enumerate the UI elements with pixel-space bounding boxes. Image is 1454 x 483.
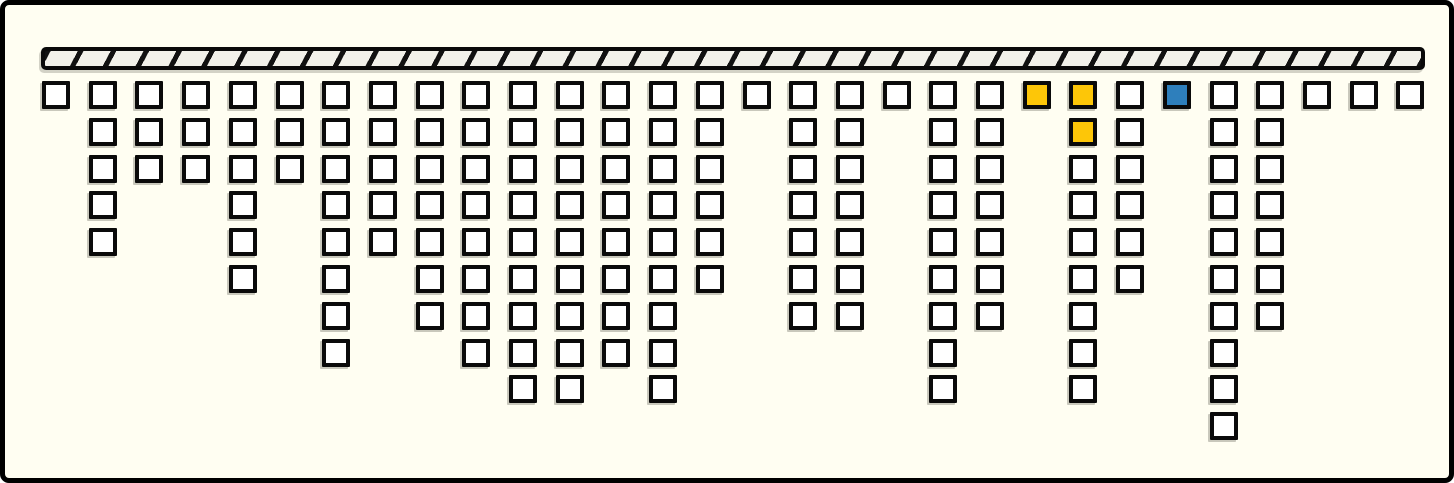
cell — [1116, 81, 1144, 109]
cell — [1069, 375, 1097, 403]
cell — [929, 118, 957, 146]
cell — [602, 339, 630, 367]
cell — [369, 81, 397, 109]
cell — [89, 118, 117, 146]
cell-highlight-yellow — [1069, 81, 1097, 109]
cell — [789, 191, 817, 219]
cell — [89, 191, 117, 219]
cell — [1069, 302, 1097, 330]
cell — [976, 191, 1004, 219]
cell — [836, 265, 864, 293]
cell — [649, 81, 677, 109]
cell — [1210, 265, 1238, 293]
cell — [462, 265, 490, 293]
cell — [462, 302, 490, 330]
cell — [416, 302, 444, 330]
cell — [696, 118, 724, 146]
cell — [276, 155, 304, 183]
cell — [1116, 118, 1144, 146]
cell — [696, 265, 724, 293]
cell — [1210, 155, 1238, 183]
cell — [696, 155, 724, 183]
diagram-frame — [0, 0, 1454, 483]
cell — [929, 228, 957, 256]
cell — [556, 81, 584, 109]
cell — [836, 302, 864, 330]
cell — [929, 339, 957, 367]
cell — [1069, 228, 1097, 256]
cell — [1256, 302, 1284, 330]
cell — [509, 228, 537, 256]
cell — [696, 191, 724, 219]
cell — [509, 375, 537, 403]
cell — [602, 155, 630, 183]
cell — [649, 118, 677, 146]
cell — [649, 155, 677, 183]
cell — [1116, 155, 1144, 183]
cell — [1256, 155, 1284, 183]
cell — [976, 155, 1004, 183]
cell — [556, 191, 584, 219]
cell — [649, 339, 677, 367]
cell — [556, 339, 584, 367]
cell — [509, 155, 537, 183]
cell — [322, 302, 350, 330]
cell — [369, 228, 397, 256]
cell — [836, 118, 864, 146]
cell — [229, 265, 257, 293]
cell — [182, 118, 210, 146]
cell — [743, 81, 771, 109]
cell — [789, 118, 817, 146]
cell — [976, 118, 1004, 146]
cell — [836, 81, 864, 109]
cell — [836, 155, 864, 183]
cell — [1069, 155, 1097, 183]
cell — [1210, 191, 1238, 219]
cell — [369, 155, 397, 183]
cell — [89, 81, 117, 109]
cell — [696, 228, 724, 256]
cell — [509, 81, 537, 109]
cell — [1256, 81, 1284, 109]
cell — [976, 302, 1004, 330]
cell — [1256, 118, 1284, 146]
cell — [696, 81, 724, 109]
cell — [976, 228, 1004, 256]
cell — [229, 155, 257, 183]
cell — [322, 265, 350, 293]
cell — [976, 81, 1004, 109]
cell — [509, 191, 537, 219]
cell — [1256, 191, 1284, 219]
cell — [836, 191, 864, 219]
cell — [1116, 191, 1144, 219]
cell — [462, 118, 490, 146]
cell — [602, 81, 630, 109]
cell — [322, 191, 350, 219]
cell — [649, 265, 677, 293]
cell — [322, 118, 350, 146]
cell — [276, 118, 304, 146]
cell — [556, 228, 584, 256]
cell — [509, 265, 537, 293]
cell — [1069, 265, 1097, 293]
cell — [322, 81, 350, 109]
cell — [556, 265, 584, 293]
cell — [929, 155, 957, 183]
cell — [42, 81, 70, 109]
cell — [182, 81, 210, 109]
cell — [556, 155, 584, 183]
cell — [322, 339, 350, 367]
cell — [1210, 81, 1238, 109]
cell — [509, 118, 537, 146]
cell — [789, 228, 817, 256]
cell — [883, 81, 911, 109]
cell — [1116, 228, 1144, 256]
cell — [89, 228, 117, 256]
cell — [929, 302, 957, 330]
cell — [602, 228, 630, 256]
cell — [462, 228, 490, 256]
cell — [1210, 375, 1238, 403]
cell — [929, 375, 957, 403]
cell — [649, 302, 677, 330]
cell — [976, 265, 1004, 293]
cell — [276, 81, 304, 109]
cell — [1069, 191, 1097, 219]
cell — [789, 81, 817, 109]
cell — [649, 375, 677, 403]
cell — [322, 228, 350, 256]
cell — [789, 302, 817, 330]
cell — [649, 228, 677, 256]
cell — [1210, 339, 1238, 367]
cell — [602, 265, 630, 293]
cell — [1256, 265, 1284, 293]
cell — [135, 118, 163, 146]
cell — [509, 339, 537, 367]
cell — [369, 118, 397, 146]
cell — [556, 118, 584, 146]
cell — [1210, 302, 1238, 330]
cell — [836, 228, 864, 256]
cell — [1303, 81, 1331, 109]
cell — [135, 155, 163, 183]
cell — [462, 339, 490, 367]
cell — [556, 302, 584, 330]
cell — [1116, 265, 1144, 293]
cell-highlight-blue — [1163, 81, 1191, 109]
cell — [602, 118, 630, 146]
cell-highlight-yellow — [1023, 81, 1051, 109]
cell — [229, 228, 257, 256]
cell — [1210, 228, 1238, 256]
cell — [416, 191, 444, 219]
cell — [1210, 118, 1238, 146]
cell — [789, 155, 817, 183]
cell — [416, 228, 444, 256]
cell — [182, 155, 210, 183]
cell — [416, 81, 444, 109]
cell — [416, 265, 444, 293]
cell — [369, 191, 397, 219]
cell — [462, 191, 490, 219]
cell — [229, 81, 257, 109]
cell — [135, 81, 163, 109]
cell — [462, 81, 490, 109]
cell — [556, 375, 584, 403]
cell — [929, 81, 957, 109]
cell — [322, 155, 350, 183]
cell-grid — [5, 5, 1449, 478]
cell — [416, 155, 444, 183]
cell — [416, 118, 444, 146]
cell — [462, 155, 490, 183]
cell — [509, 302, 537, 330]
cell — [229, 118, 257, 146]
cell — [1396, 81, 1424, 109]
cell — [1210, 412, 1238, 440]
cell — [602, 191, 630, 219]
cell — [1069, 339, 1097, 367]
cell — [929, 265, 957, 293]
cell — [929, 191, 957, 219]
cell — [229, 191, 257, 219]
cell — [89, 155, 117, 183]
cell — [1256, 228, 1284, 256]
cell — [602, 302, 630, 330]
cell-highlight-yellow — [1069, 118, 1097, 146]
cell — [789, 265, 817, 293]
cell — [649, 191, 677, 219]
cell — [1350, 81, 1378, 109]
